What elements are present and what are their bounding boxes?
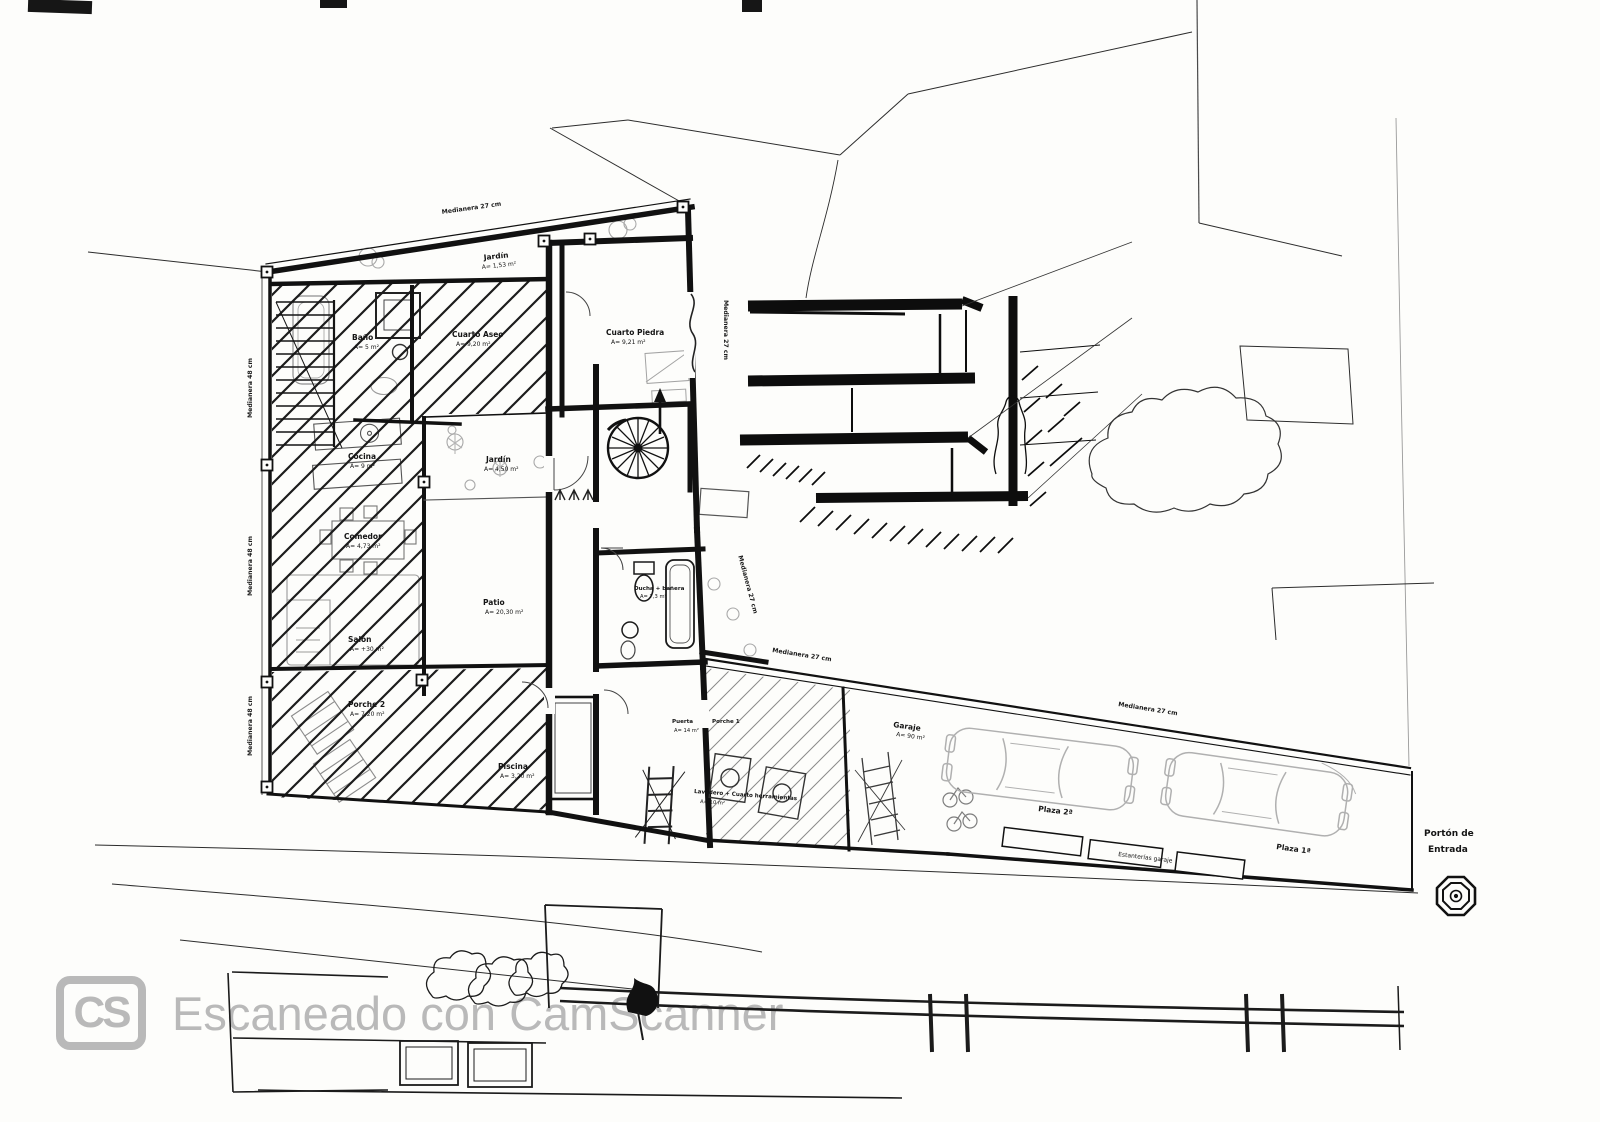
label-puerta-area: A= 14 m² (674, 728, 699, 734)
label-cocina-area: A= 9 m² (350, 463, 376, 470)
label-porton-line1: Portón de (1424, 828, 1474, 839)
label-plaza-1: Plaza 1ª (1276, 842, 1312, 856)
scan-artifacts (28, 0, 1409, 766)
label-medianera-right-upper: Medianera 27 cm (722, 300, 729, 360)
label-jardin-top-name: Jardín (482, 250, 509, 262)
floor-plan-drawing: Medianera 27 cm Medianera 27 cm Medianer… (0, 0, 1600, 1122)
entry-octagon-marker (1437, 877, 1475, 915)
label-jardin-patio-area: A= 4,50 m² (484, 466, 519, 473)
label-cocina-name: Cocina (348, 452, 376, 461)
sink-icon (622, 622, 638, 638)
tree-sketch-large (1089, 387, 1281, 512)
label-ducha-area: A= 7,3 m² (640, 594, 667, 600)
label-medianera-diag-2: Medianera 27 cm (1118, 701, 1178, 717)
label-medianera-diag-1: Medianera 27 cm (772, 647, 832, 663)
label-piscina-name: Piscina (498, 762, 528, 771)
label-medianera-left-2: Medianera 48 cm (247, 536, 254, 596)
label-puerta-name: Puerta (672, 719, 693, 725)
label-medianera-right-mid: Medianera 27 cm (736, 555, 758, 615)
label-jardin-top-area: A= 1,53 m² (481, 260, 517, 271)
leaf-blob (626, 978, 658, 1016)
label-patio-name: Patio (483, 598, 505, 607)
label-lavadero-area: A= 10 m² (700, 799, 725, 807)
lower-building-sketch (228, 905, 1404, 1098)
label-cuarto-piedra-area: A= 9,21 m² (611, 339, 646, 346)
label-porche-1-name: Porche 1 (712, 719, 740, 725)
label-porton-line2: Entrada (1428, 845, 1468, 855)
label-garaje-area: A= 90 m² (896, 731, 926, 742)
label-medianera-left-3: Medianera 48 cm (247, 696, 254, 756)
label-salon-area: A= +30 m² (350, 646, 384, 653)
label-patio-area: A= 20,30 m² (485, 609, 524, 616)
bathroom-fixtures (621, 560, 694, 659)
label-salon-name: Salón (348, 635, 372, 644)
label-plaza-2: Plaza 2ª (1038, 804, 1073, 817)
label-medianera-left-1: Medianera 48 cm (247, 358, 254, 418)
label-cuarto-aseo-name: Cuarto Aseo (452, 330, 503, 339)
label-piscina-area: A= 3,20 m² (500, 773, 535, 780)
label-cuarto-aseo-area: A= 9,20 m² (456, 341, 491, 348)
label-comedor-name: Comedor (344, 532, 382, 541)
label-comedor-area: A= 4,73 m² (346, 543, 381, 550)
scanned-floor-plan-page: CS Escaneado con CamScanner (0, 0, 1600, 1122)
bicycle-icons (943, 788, 977, 831)
label-cuarto-piedra-name: Cuarto Piedra (606, 328, 664, 337)
ladder-icon (855, 752, 905, 845)
label-bano-area: A= 5 m² (354, 344, 380, 351)
hook-glyphs (555, 490, 593, 500)
label-bano-name: Baño (352, 333, 373, 342)
label-ducha-name: Ducha + bañera (634, 586, 685, 592)
label-porche-2-name: Porche 2 (348, 700, 385, 709)
section-sketch (740, 242, 1142, 553)
label-jardin-patio-name: Jardín (485, 455, 511, 464)
label-porche-2-area: A= 7,20 m² (350, 711, 385, 718)
label-medianera-top: Medianera 27 cm (441, 201, 501, 216)
car-sketch-plaza-2 (940, 726, 1139, 813)
